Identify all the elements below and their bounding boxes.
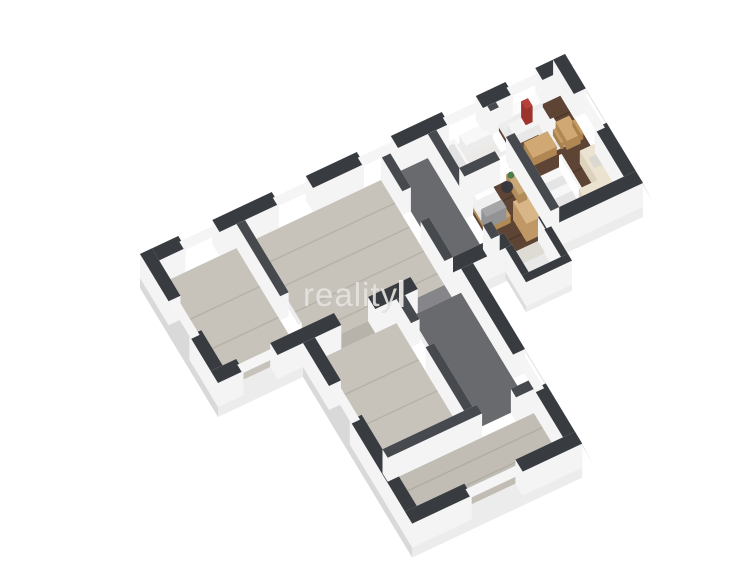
watermark-text: reality	[303, 276, 398, 313]
watermark-bar	[399, 280, 404, 307]
watermark-group: reality	[303, 276, 404, 313]
floorplan-3d-image: reality	[0, 0, 749, 562]
floorplan-render-page: reality	[0, 0, 749, 562]
office-chair	[501, 181, 513, 193]
